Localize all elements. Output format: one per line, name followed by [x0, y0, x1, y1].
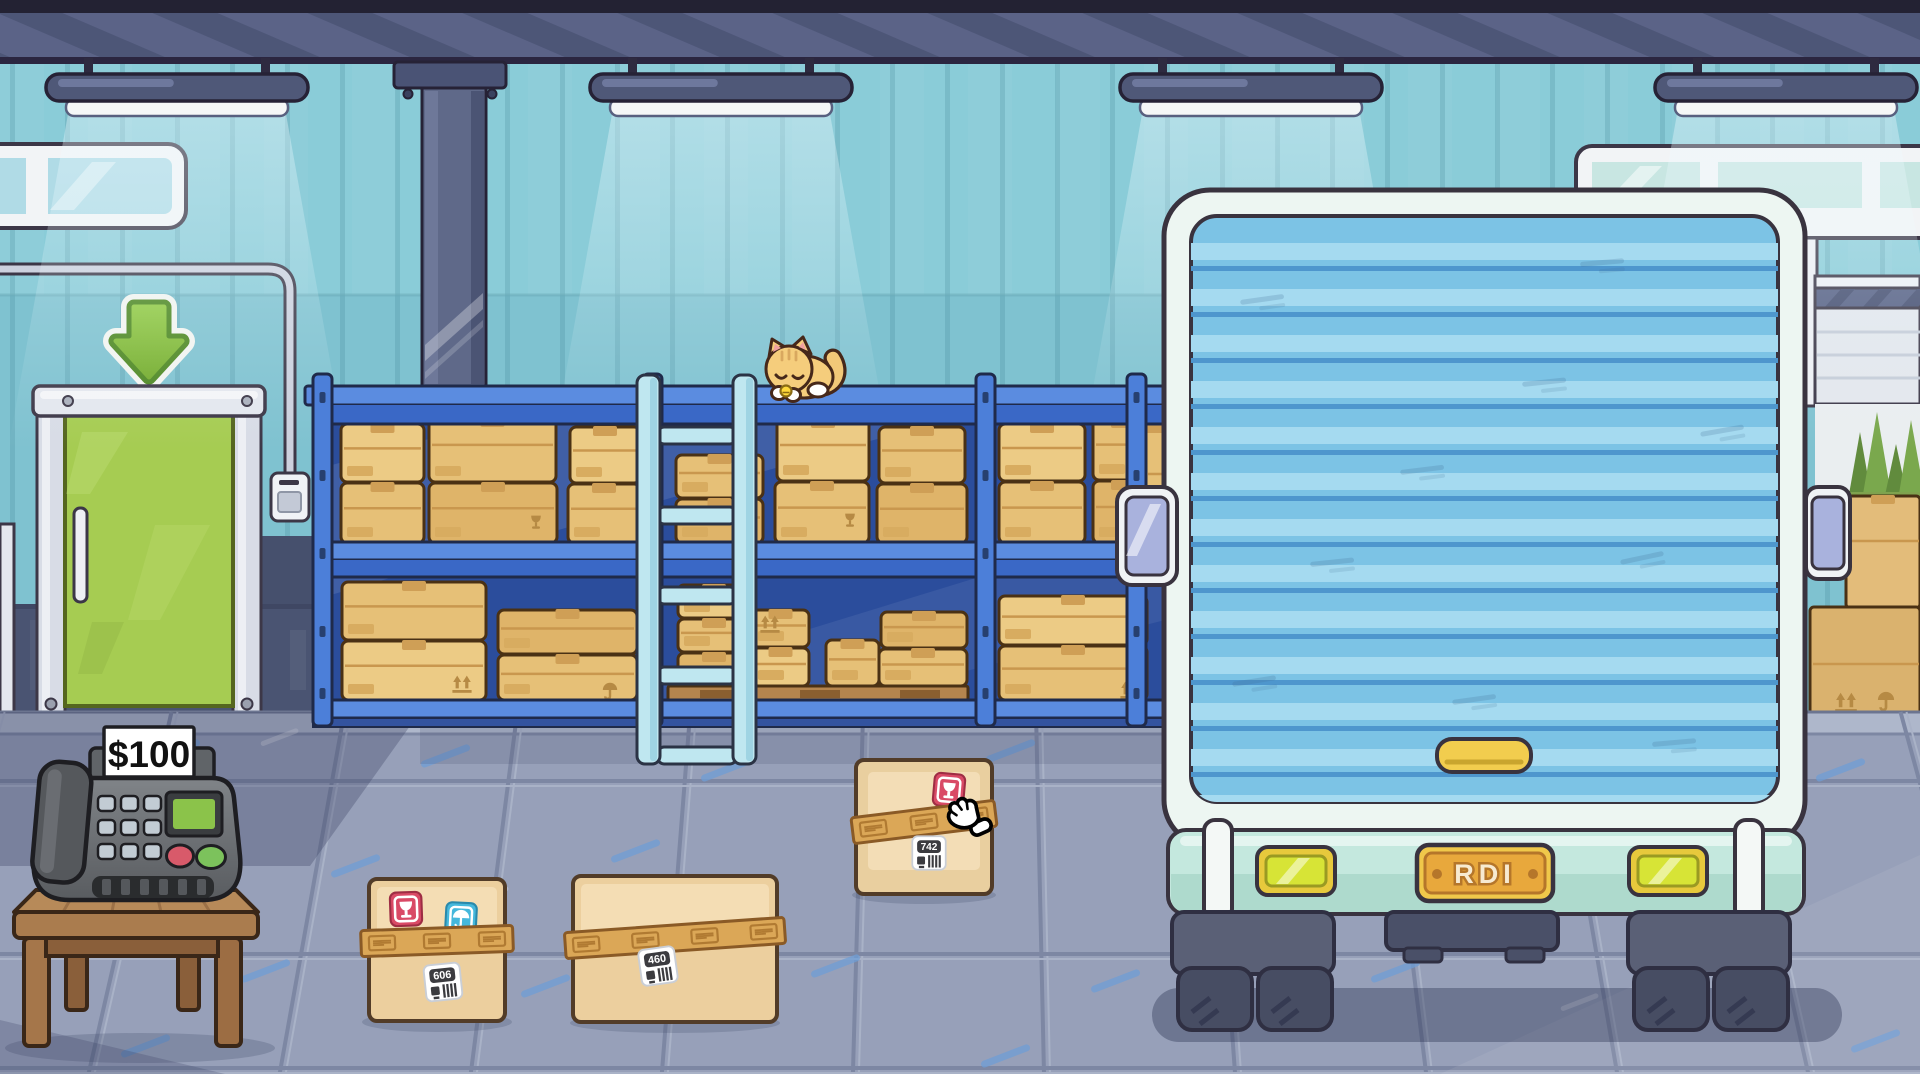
svg-text:RDI: RDI — [1454, 859, 1516, 889]
svg-text:606: 606 — [433, 969, 452, 983]
svg-text:460: 460 — [647, 953, 667, 967]
svg-text:742: 742 — [921, 842, 938, 853]
svg-text:$100: $100 — [108, 734, 190, 775]
